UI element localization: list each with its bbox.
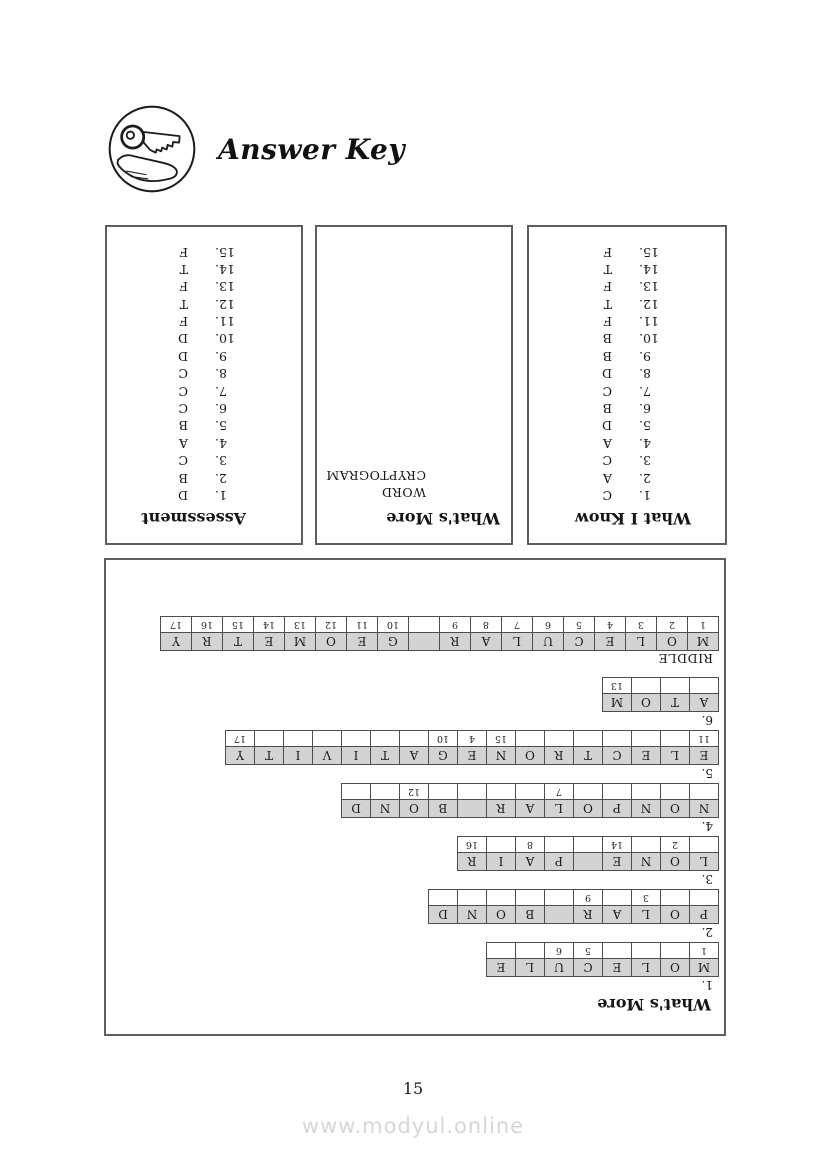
number-cell <box>660 730 690 747</box>
letter-cell: Y <box>160 632 192 651</box>
answer-number: 10. <box>639 330 725 347</box>
letter-cell: A <box>515 799 545 818</box>
puzzle-riddle: RIDDLE MOLECULARGEOMETRY 123456789101112… <box>106 616 719 666</box>
answer-letter: B <box>179 417 188 434</box>
number-cell <box>515 730 545 747</box>
number-cell <box>660 942 690 959</box>
puzzle-item-6-letter-row: ATOM <box>106 693 719 712</box>
whats-more-cryptogram-box: What's More WORD CRYPTOGRAM <box>315 225 513 545</box>
number-cell: 5 <box>563 616 595 633</box>
answer-row: 10.B <box>529 330 725 347</box>
number-cell: 15 <box>486 730 516 747</box>
answer-letter: C <box>178 382 188 399</box>
letter-cell: T <box>660 693 690 712</box>
answer-row: 4.A <box>107 434 301 451</box>
letter-cell: E <box>253 632 285 651</box>
letter-cell: O <box>660 799 690 818</box>
number-cell <box>631 942 661 959</box>
number-cell <box>283 730 313 747</box>
answer-number: 14. <box>215 261 301 278</box>
puzzle-item-6-label: 6. <box>106 712 713 727</box>
answer-letter: B <box>603 330 612 347</box>
answer-number: 12. <box>215 295 301 312</box>
letter-cell: E <box>689 746 719 765</box>
answer-letter: D <box>602 365 612 382</box>
answer-letter: C <box>178 452 188 469</box>
letter-cell: M <box>687 632 719 651</box>
answer-letter: D <box>178 347 188 364</box>
number-cell: 12 <box>315 616 347 633</box>
puzzle-item-4-letter-row: NONPOLARBOND <box>106 799 719 818</box>
answer-row: 14.T <box>107 261 301 278</box>
answer-row: 9.B <box>529 347 725 364</box>
answer-letter: F <box>603 243 612 260</box>
puzzle-item-5: 5. ELECTRONEGATIVITY 111541017 <box>106 730 719 780</box>
answer-letter: D <box>602 417 612 434</box>
letter-cell: T <box>573 746 603 765</box>
letter-cell: V <box>312 746 342 765</box>
number-cell: 10 <box>428 730 458 747</box>
answer-row: 8.C <box>107 365 301 382</box>
answer-row: 6.C <box>107 400 301 417</box>
puzzle-item-5-label: 5. <box>106 765 713 780</box>
answer-row: 10.D <box>107 330 301 347</box>
answer-letter: F <box>603 278 612 295</box>
letter-cell: A <box>470 632 502 651</box>
answer-number: 1. <box>639 487 725 504</box>
what-i-know-answer-list: 1.C2.A3.C4.A5.D6.B7.C8.D9.B10.B11.F12.T1… <box>529 243 725 504</box>
letter-cell: R <box>439 632 471 651</box>
answer-number: 2. <box>215 469 301 486</box>
whats-more-cryptogram-title: What's More <box>317 509 500 528</box>
answer-letter: A <box>603 469 612 486</box>
answer-row: 5.B <box>107 417 301 434</box>
letter-cell: E <box>486 958 516 977</box>
number-cell: 17 <box>225 730 255 747</box>
number-cell <box>631 783 661 800</box>
letter-cell: B <box>515 905 545 924</box>
puzzle-item-3-label: 3. <box>106 871 713 886</box>
answer-row: 13.F <box>107 278 301 295</box>
number-cell <box>399 730 429 747</box>
number-cell: 6 <box>544 942 574 959</box>
assessment-box: Assessment 1.D2.B3.C4.A5.B6.C7.C8.C9.D10… <box>105 225 303 545</box>
letter-cell: P <box>544 852 574 871</box>
answer-row: 5.D <box>529 417 725 434</box>
answer-letter: D <box>178 330 188 347</box>
puzzle-item-2-number-row: 39 <box>106 889 719 905</box>
letter-cell: N <box>457 905 487 924</box>
number-cell <box>428 783 458 800</box>
number-cell: 9 <box>573 889 603 906</box>
puzzle-item-2: 2. POLARBOND 39 <box>106 889 719 939</box>
number-cell: 13 <box>602 677 632 694</box>
answer-number: 8. <box>639 365 725 382</box>
whats-more-puzzle-box: What's More 1. MOLECULE 156 2. POLARBOND… <box>104 558 726 1036</box>
puzzle-item-3-number-row: 214816 <box>106 836 719 852</box>
letter-cell: O <box>573 799 603 818</box>
letter-cell <box>408 632 440 651</box>
answer-number: 8. <box>215 365 301 382</box>
letter-cell: R <box>573 905 603 924</box>
number-cell: 8 <box>470 616 502 633</box>
number-cell: 7 <box>544 783 574 800</box>
letter-cell <box>573 852 603 871</box>
answer-letter: F <box>179 278 188 295</box>
number-cell: 5 <box>573 942 603 959</box>
letter-cell: L <box>515 958 545 977</box>
assessment-answer-list: 1.D2.B3.C4.A5.B6.C7.C8.C9.D10.D11.F12.T1… <box>107 243 301 504</box>
puzzle-item-4-number-row: 712 <box>106 783 719 799</box>
answer-letter: B <box>179 469 188 486</box>
answer-row: 2.A <box>529 469 725 486</box>
answer-row: 11.F <box>107 313 301 330</box>
answer-number: 3. <box>639 452 725 469</box>
number-cell: 1 <box>689 942 719 959</box>
number-cell <box>486 942 516 959</box>
number-cell: 12 <box>399 783 429 800</box>
letter-cell: N <box>486 746 516 765</box>
answer-row: 12.T <box>107 295 301 312</box>
number-cell: 4 <box>457 730 487 747</box>
answer-letter: F <box>179 243 188 260</box>
answer-row: 14.T <box>529 261 725 278</box>
letter-cell: T <box>222 632 254 651</box>
letter-cell: L <box>631 905 661 924</box>
number-cell <box>660 783 690 800</box>
number-cell <box>660 677 690 694</box>
number-cell <box>515 783 545 800</box>
number-cell <box>689 889 719 906</box>
number-cell <box>631 677 661 694</box>
puzzle-item-1: 1. MOLECULE 156 <box>106 942 719 992</box>
letter-cell: P <box>689 905 719 924</box>
answer-letter: C <box>178 365 188 382</box>
number-cell: 10 <box>377 616 409 633</box>
number-cell: 14 <box>253 616 285 633</box>
number-cell <box>341 783 371 800</box>
number-cell <box>602 783 632 800</box>
number-cell: 2 <box>656 616 688 633</box>
answer-letter: C <box>178 400 188 417</box>
letter-cell: O <box>315 632 347 651</box>
answer-row: 3.C <box>529 452 725 469</box>
letter-cell: A <box>515 852 545 871</box>
answer-row: 1.D <box>107 487 301 504</box>
puzzle-riddle-label: RIDDLE <box>106 651 713 666</box>
puzzle-item-3: 3. LONEPAIR 214816 <box>106 836 719 886</box>
letter-cell: L <box>660 746 690 765</box>
number-cell <box>486 889 516 906</box>
number-cell <box>573 783 603 800</box>
answer-number: 7. <box>215 382 301 399</box>
letter-cell: C <box>573 958 603 977</box>
number-cell: 16 <box>457 836 487 853</box>
what-i-know-box-content: What I Know 1.C2.A3.C4.A5.D6.B7.C8.D9.B1… <box>529 227 725 543</box>
letter-cell: A <box>602 905 632 924</box>
number-cell: 3 <box>631 889 661 906</box>
assessment-box-content: Assessment 1.D2.B3.C4.A5.B6.C7.C8.C9.D10… <box>107 227 301 543</box>
number-cell <box>689 836 719 853</box>
answer-row: 11.F <box>529 313 725 330</box>
letter-cell: I <box>486 852 516 871</box>
number-cell: 6 <box>532 616 564 633</box>
key-in-hand-icon <box>106 101 198 197</box>
answer-letter: C <box>602 382 612 399</box>
answer-number: 9. <box>639 347 725 364</box>
number-cell <box>660 889 690 906</box>
number-cell <box>689 783 719 800</box>
answer-number: 5. <box>639 417 725 434</box>
answer-row: 4.A <box>529 434 725 451</box>
number-cell <box>602 942 632 959</box>
answer-letter: T <box>604 295 612 312</box>
answer-letter: T <box>180 295 188 312</box>
answer-number: 5. <box>215 417 301 434</box>
letter-cell: M <box>689 958 719 977</box>
number-cell <box>428 889 458 906</box>
letter-cell: R <box>191 632 223 651</box>
cryptogram-label-line2: CRYPTOGRAM <box>317 467 426 484</box>
letter-cell: D <box>341 799 371 818</box>
letter-cell: O <box>660 958 690 977</box>
answer-number: 14. <box>639 261 725 278</box>
puzzle-riddle-letter-row: MOLECULARGEOMETRY <box>106 632 719 651</box>
letter-cell: C <box>602 746 632 765</box>
letter-cell: Y <box>225 746 255 765</box>
letter-cell: N <box>689 799 719 818</box>
answer-number: 11. <box>639 313 725 330</box>
letter-cell: E <box>631 746 661 765</box>
answer-row: 7.C <box>107 382 301 399</box>
letter-cell: O <box>486 905 516 924</box>
number-cell <box>602 889 632 906</box>
answer-number: 4. <box>639 434 725 451</box>
number-cell <box>254 730 284 747</box>
letter-cell: C <box>563 632 595 651</box>
letter-cell: M <box>602 693 632 712</box>
letter-cell: R <box>457 852 487 871</box>
puzzle-title: What's More <box>106 995 711 1014</box>
puzzle-item-2-letter-row: POLARBOND <box>106 905 719 924</box>
number-cell <box>631 730 661 747</box>
letter-cell: D <box>428 905 458 924</box>
answer-number: 15. <box>639 243 725 260</box>
answer-letter: D <box>178 487 188 504</box>
answer-row: 7.C <box>529 382 725 399</box>
cryptogram-label-line1: WORD <box>317 484 426 501</box>
answer-number: 1. <box>215 487 301 504</box>
letter-cell: L <box>689 852 719 871</box>
number-cell: 4 <box>594 616 626 633</box>
letter-cell: O <box>660 852 690 871</box>
letter-cell: O <box>631 693 661 712</box>
answer-number: 6. <box>639 400 725 417</box>
number-cell: 13 <box>284 616 316 633</box>
number-cell <box>573 730 603 747</box>
answer-number: 9. <box>215 347 301 364</box>
letter-cell: R <box>486 799 516 818</box>
letter-cell: U <box>532 632 564 651</box>
puzzle-item-4: 4. NONPOLARBOND 712 <box>106 783 719 833</box>
number-cell: 15 <box>222 616 254 633</box>
letter-cell: R <box>544 746 574 765</box>
answer-row: 9.D <box>107 347 301 364</box>
number-cell <box>457 783 487 800</box>
letter-cell: E <box>602 958 632 977</box>
puzzle-item-6-number-row: 13 <box>106 677 719 693</box>
answer-letter: C <box>602 487 612 504</box>
answer-number: 13. <box>215 278 301 295</box>
letter-cell: E <box>457 746 487 765</box>
number-cell <box>515 889 545 906</box>
answer-letter: F <box>603 313 612 330</box>
number-cell <box>486 836 516 853</box>
letter-cell: O <box>660 905 690 924</box>
answer-row: 3.C <box>107 452 301 469</box>
number-cell: 9 <box>439 616 471 633</box>
number-cell: 11 <box>346 616 378 633</box>
letter-cell: O <box>656 632 688 651</box>
number-cell <box>370 730 400 747</box>
number-cell: 14 <box>602 836 632 853</box>
puzzle-item-1-number-row: 156 <box>106 942 719 958</box>
number-cell <box>602 730 632 747</box>
watermark: www.modyul.online <box>0 1114 826 1138</box>
letter-cell <box>544 905 574 924</box>
puzzle-item-1-label: 1. <box>106 977 713 992</box>
answer-row: 8.D <box>529 365 725 382</box>
letter-cell: T <box>254 746 284 765</box>
letter-cell: L <box>544 799 574 818</box>
letter-cell: U <box>544 958 574 977</box>
answer-row: 13.F <box>529 278 725 295</box>
number-cell <box>341 730 371 747</box>
letter-cell: E <box>346 632 378 651</box>
answer-number: 6. <box>215 400 301 417</box>
number-cell: 3 <box>625 616 657 633</box>
answer-number: 10. <box>215 330 301 347</box>
letter-cell: A <box>689 693 719 712</box>
letter-cell: L <box>625 632 657 651</box>
puzzle-item-1-letter-row: MOLECULE <box>106 958 719 977</box>
letter-cell: I <box>341 746 371 765</box>
letter-cell: G <box>377 632 409 651</box>
letter-cell: L <box>501 632 533 651</box>
letter-cell: E <box>602 852 632 871</box>
answer-number: 3. <box>215 452 301 469</box>
puzzle-item-2-label: 2. <box>106 924 713 939</box>
answer-row: 15.F <box>529 243 725 260</box>
what-i-know-box: What I Know 1.C2.A3.C4.A5.D6.B7.C8.D9.B1… <box>527 225 727 545</box>
whats-more-cryptogram-content: What's More WORD CRYPTOGRAM <box>317 227 511 543</box>
puzzle-item-3-letter-row: LONEPAIR <box>106 852 719 871</box>
number-cell <box>312 730 342 747</box>
answer-number: 12. <box>639 295 725 312</box>
answer-letter: A <box>179 434 188 451</box>
letter-cell: L <box>631 958 661 977</box>
assessment-title: Assessment <box>107 509 246 528</box>
number-cell <box>486 783 516 800</box>
answer-number: 7. <box>639 382 725 399</box>
letter-cell: I <box>283 746 313 765</box>
letter-cell: G <box>428 746 458 765</box>
answer-row: 1.C <box>529 487 725 504</box>
number-cell <box>544 836 574 853</box>
answer-number: 4. <box>215 434 301 451</box>
number-cell: 16 <box>191 616 223 633</box>
what-i-know-title: What I Know <box>529 509 691 528</box>
letter-cell: N <box>370 799 400 818</box>
letter-cell: N <box>631 852 661 871</box>
answer-row: 15.F <box>107 243 301 260</box>
number-cell: 11 <box>689 730 719 747</box>
answer-letter: B <box>603 347 612 364</box>
letter-cell: O <box>399 799 429 818</box>
puzzle-riddle-number-row: 1234567891011121314151617 <box>106 616 719 632</box>
answer-number: 2. <box>639 469 725 486</box>
cryptogram-label: WORD CRYPTOGRAM <box>317 467 426 501</box>
puzzle-item-5-number-row: 111541017 <box>106 730 719 746</box>
number-cell <box>573 836 603 853</box>
answer-key-page: Answer Key Assessment 1.D2.B3.C4.A5.B6.C… <box>0 0 826 1169</box>
number-cell: 1 <box>687 616 719 633</box>
letter-cell <box>457 799 487 818</box>
number-cell: 8 <box>515 836 545 853</box>
answer-row: 12.T <box>529 295 725 312</box>
number-cell <box>457 889 487 906</box>
answer-letter: B <box>603 400 612 417</box>
puzzle-item-6: 6. ATOM 13 <box>106 677 719 727</box>
puzzle-item-5-letter-row: ELECTRONEGATIVITY <box>106 746 719 765</box>
answer-number: 11. <box>215 313 301 330</box>
letter-cell: E <box>594 632 626 651</box>
letter-cell: O <box>515 746 545 765</box>
page-title: Answer Key <box>218 133 405 166</box>
number-cell <box>515 942 545 959</box>
answer-letter: A <box>603 434 612 451</box>
letter-cell: A <box>399 746 429 765</box>
answer-letter: T <box>180 261 188 278</box>
puzzle-item-4-label: 4. <box>106 818 713 833</box>
answer-number: 15. <box>215 243 301 260</box>
number-cell: 2 <box>660 836 690 853</box>
whats-more-puzzle-content: What's More 1. MOLECULE 156 2. POLARBOND… <box>106 560 724 1034</box>
letter-cell: N <box>631 799 661 818</box>
answer-number: 13. <box>639 278 725 295</box>
answer-row: 2.B <box>107 469 301 486</box>
answer-row: 6.B <box>529 400 725 417</box>
answer-letter: F <box>179 313 188 330</box>
page-number: 15 <box>0 1079 826 1098</box>
letter-cell: B <box>428 799 458 818</box>
number-cell <box>370 783 400 800</box>
answer-letter: T <box>604 261 612 278</box>
number-cell <box>689 677 719 694</box>
letter-cell: P <box>602 799 632 818</box>
number-cell <box>408 616 440 633</box>
number-cell <box>631 836 661 853</box>
number-cell: 17 <box>160 616 192 633</box>
number-cell: 7 <box>501 616 533 633</box>
number-cell <box>544 889 574 906</box>
answer-letter: C <box>602 452 612 469</box>
letter-cell: T <box>370 746 400 765</box>
letter-cell: M <box>284 632 316 651</box>
number-cell <box>544 730 574 747</box>
